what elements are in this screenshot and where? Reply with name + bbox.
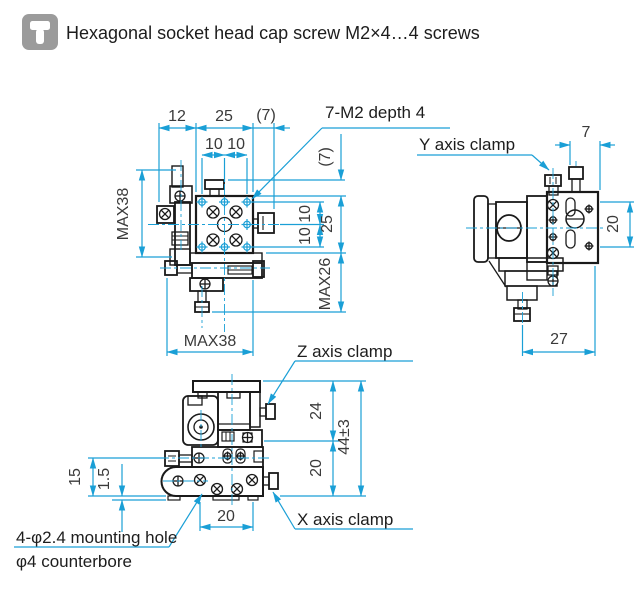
- dim-24: 24: [308, 402, 325, 420]
- label-mounting-hole: 4-φ2.4 mounting hole: [16, 528, 177, 547]
- bottom-view-dimension-text: 24 20 44±3 15 1.5 20 Z axis clamp X axis…: [16, 342, 393, 571]
- front-z-arm: [177, 265, 192, 273]
- side-mid-block: [496, 202, 527, 258]
- dim-44: 44±3: [336, 419, 353, 455]
- front-view-dimension-text: 12 25 (7) 10 10 MAX38 MAX38 (7) 10 10 25…: [115, 103, 425, 350]
- mounting-screw-icon: [195, 475, 206, 486]
- side-view-centerlines: [466, 161, 604, 330]
- screw-icon: [223, 452, 232, 461]
- m2-hole-icon: [242, 242, 253, 253]
- dim-7-top: (7): [256, 107, 276, 124]
- front-right-knob: [258, 213, 274, 233]
- side-view-body: [474, 167, 598, 321]
- side-flange-neck: [488, 204, 496, 258]
- dim-20-side: 20: [605, 215, 622, 233]
- dim-20-bottom: 20: [217, 508, 235, 525]
- label-x-axis-clamp: X axis clamp: [297, 510, 393, 529]
- dim-20-right: 20: [308, 459, 325, 477]
- z-clamp-knob: [266, 404, 275, 419]
- label-y-axis-clamp: Y axis clamp: [419, 135, 515, 154]
- dim-max38-left: MAX38: [115, 188, 132, 241]
- cap-screw-icon-head: [30, 21, 50, 30]
- m2-hole-icon: [242, 197, 253, 208]
- dim-7: 7: [582, 124, 591, 141]
- y-clamp-neck: [549, 186, 558, 195]
- screw-icon: [236, 452, 245, 461]
- front-left-foot: [170, 249, 190, 265]
- y-fine-knob: [569, 167, 583, 179]
- dim-12: 12: [168, 108, 186, 125]
- side-view-dimensions: [417, 141, 634, 356]
- header: Hexagonal socket head cap screw M2×4…4 s…: [22, 14, 480, 50]
- cap-screw-icon-shaft: [36, 29, 44, 44]
- screw-icon: [207, 234, 219, 246]
- dim-1010-right: 10 10: [297, 205, 314, 245]
- front-z-step: [190, 253, 262, 263]
- bottom-view-screws: [173, 433, 258, 495]
- dim-1010-top: 10 10: [205, 136, 245, 153]
- screw-icon: [243, 433, 253, 443]
- z-right-rib: [250, 392, 260, 427]
- dim-15: 15: [67, 468, 84, 486]
- mounting-screw-icon: [247, 475, 258, 486]
- mounting-screw-icon: [212, 484, 223, 495]
- front-top-knob: [205, 180, 224, 189]
- screw-icon: [230, 206, 242, 218]
- page-title: Hexagonal socket head cap screw M2×4…4 s…: [66, 23, 480, 43]
- m2-hole-icon: [197, 197, 208, 208]
- dim-25-top: 25: [215, 108, 233, 125]
- screw-icon: [200, 279, 210, 289]
- x-fine-shaft: [179, 455, 192, 462]
- side-foot: [507, 286, 537, 300]
- y-fine-shaft: [572, 179, 580, 192]
- screw-icon: [160, 209, 171, 220]
- m2-hole-icon: [197, 242, 208, 253]
- x-stage-step: [254, 451, 263, 462]
- side-center-column: [527, 196, 547, 262]
- label-tapped-holes: 7-M2 depth 4: [325, 103, 425, 122]
- screw-icon: [230, 234, 242, 246]
- screw-icon: [207, 206, 219, 218]
- x-clamp-knob: [269, 473, 278, 489]
- x-fine-knob: [165, 451, 179, 466]
- dim-27: 27: [550, 331, 568, 348]
- side-slot-lower: [566, 230, 575, 248]
- technical-drawing-page: Hexagonal socket head cap screw M2×4…4 s…: [0, 0, 635, 590]
- dim-max38-bottom: MAX38: [184, 333, 237, 350]
- side-flange: [474, 196, 488, 262]
- label-counterbore: φ4 counterbore: [16, 552, 132, 571]
- mounting-screw-icon: [232, 484, 243, 495]
- z-top-plate: [193, 381, 260, 392]
- dim-25-right: 25: [319, 215, 336, 233]
- screw-icon: [175, 191, 185, 201]
- screw-icon: [585, 242, 594, 251]
- dim-7-right: (7): [317, 147, 334, 167]
- screw-icon: [585, 205, 594, 214]
- side-view-screws: [548, 200, 594, 287]
- drawing-canvas: Hexagonal socket head cap screw M2×4…4 s…: [0, 0, 635, 590]
- dim-max26: MAX26: [317, 258, 334, 311]
- front-view-centerlines: [148, 160, 284, 332]
- dim-1-5: 1.5: [96, 468, 113, 490]
- label-z-axis-clamp: Z axis clamp: [297, 342, 392, 361]
